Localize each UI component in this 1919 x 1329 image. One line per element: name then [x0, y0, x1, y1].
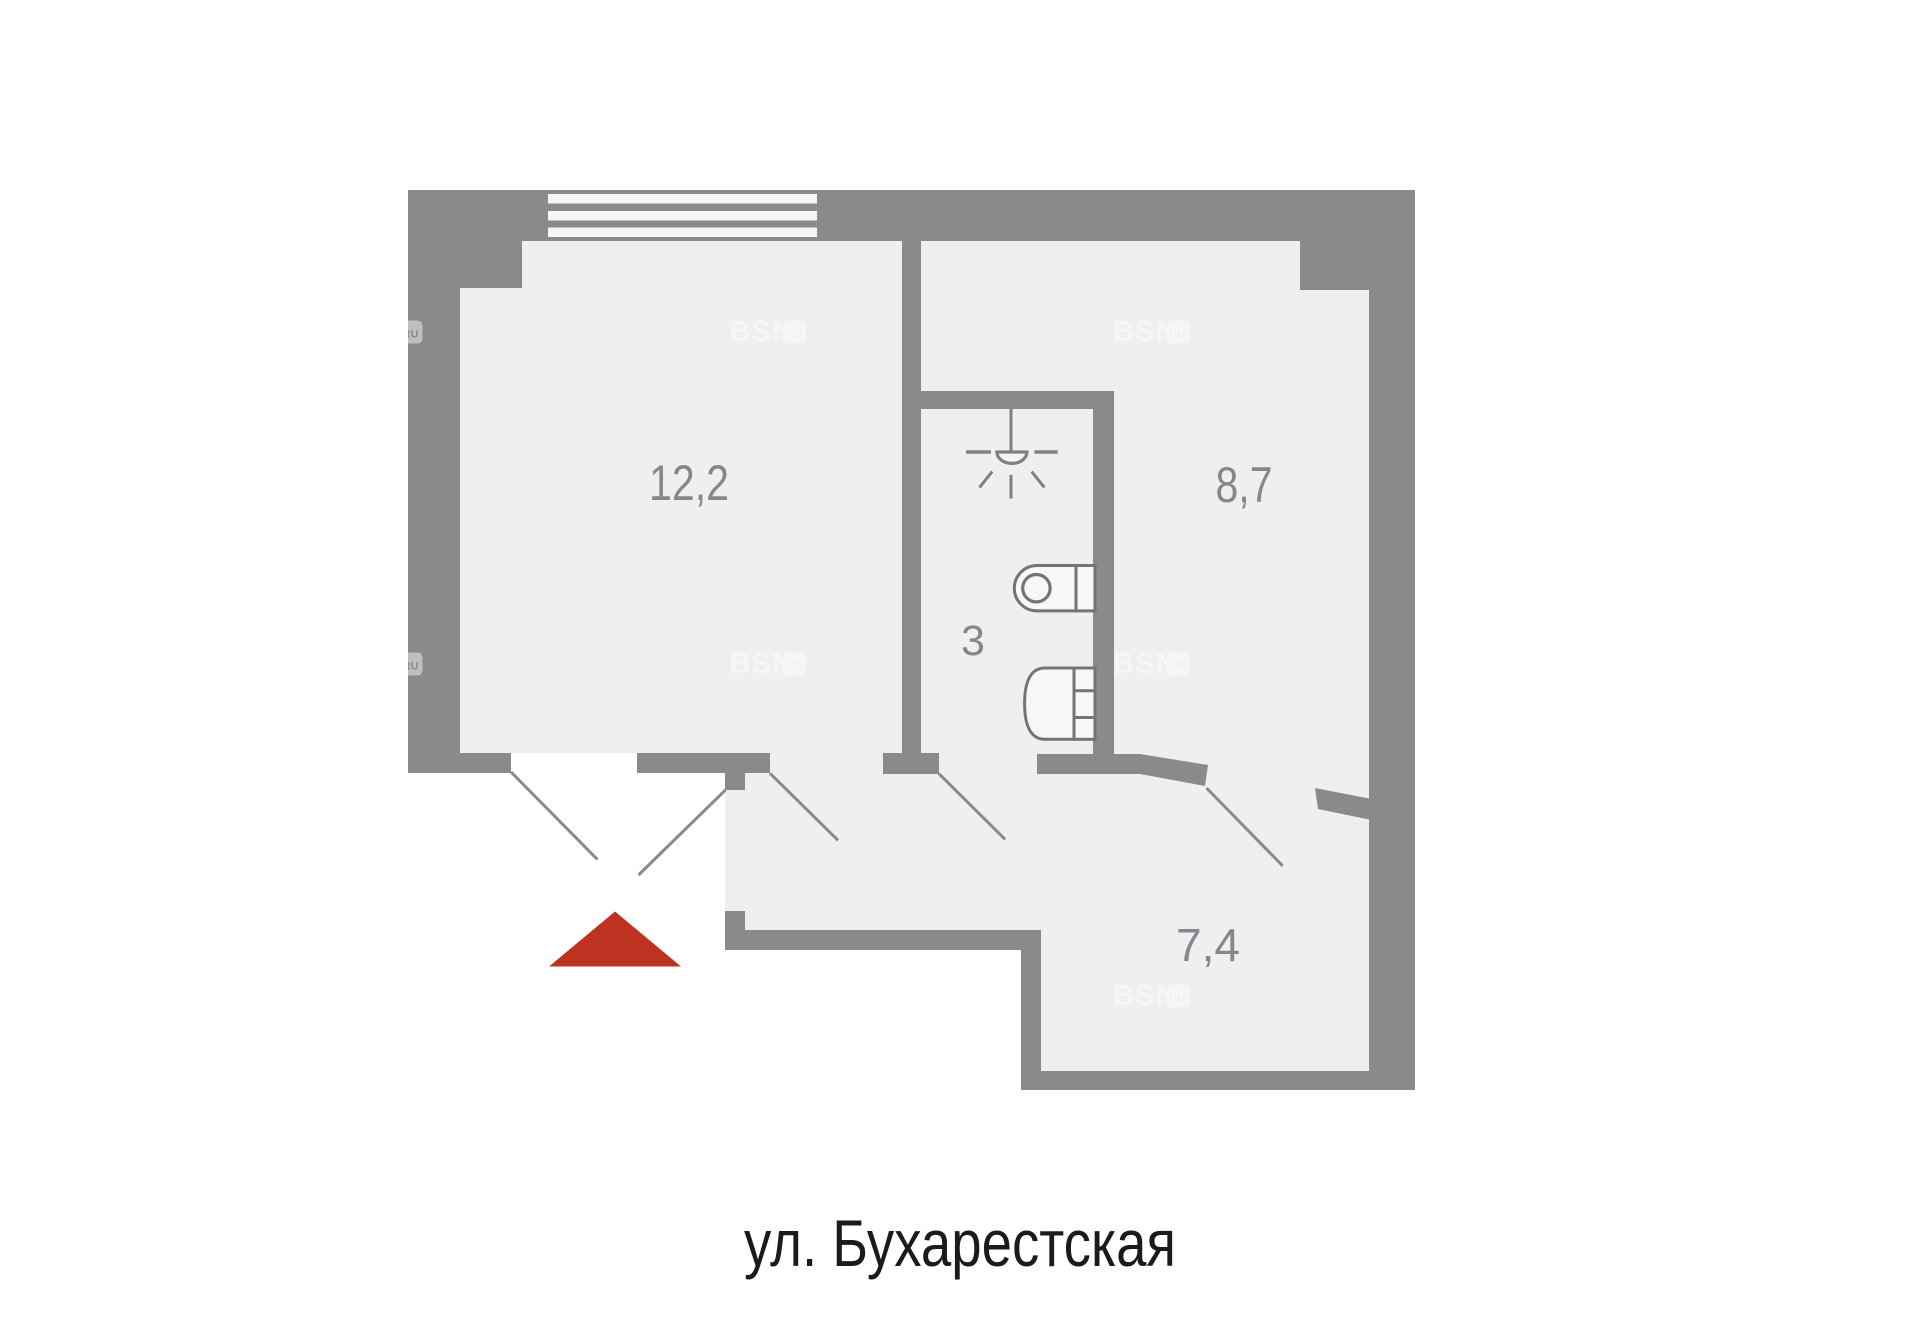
svg-text:12,2: 12,2: [649, 455, 729, 511]
svg-text:ул. Бухарестская: ул. Бухарестская: [744, 1206, 1176, 1280]
svg-text:7,4: 7,4: [1176, 919, 1240, 971]
svg-text:3: 3: [961, 617, 985, 665]
svg-text:8,7: 8,7: [1216, 457, 1273, 513]
